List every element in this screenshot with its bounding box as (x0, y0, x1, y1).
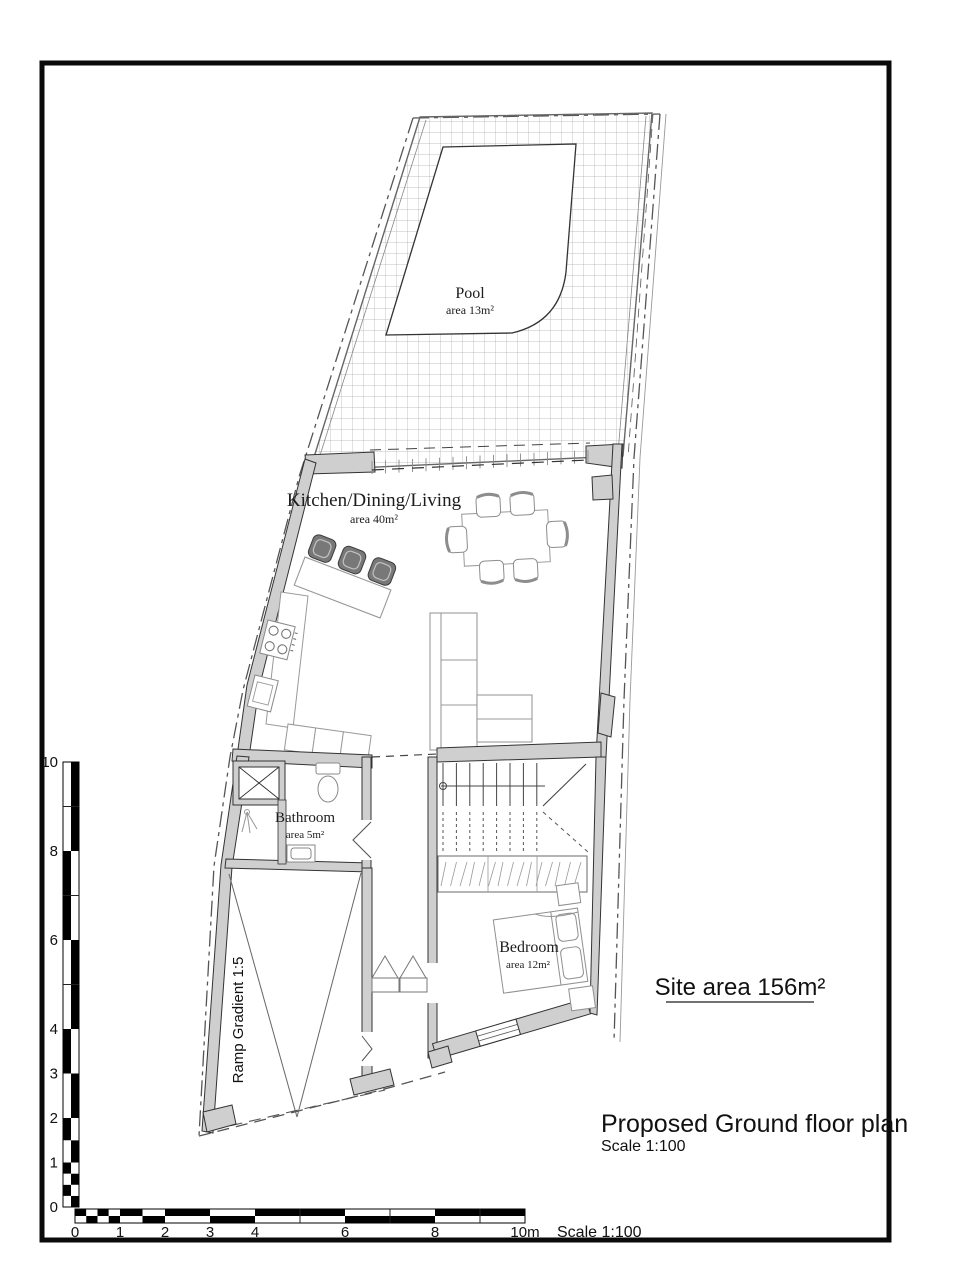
bedroom-window (476, 1019, 521, 1046)
horizontal-scale-label: 4 (251, 1224, 259, 1241)
vertical-scale-label: 1 (50, 1155, 58, 1172)
toilet (316, 763, 340, 802)
bathroom-area-label: area 5m² (286, 829, 325, 841)
drawing-title-scale: Scale 1:100 (601, 1138, 686, 1155)
horizontal-scale-label: 6 (341, 1224, 349, 1241)
dining-set (444, 490, 569, 585)
pillow (555, 912, 579, 942)
scale-note: Scale 1:100 (557, 1224, 642, 1241)
nightstand (569, 986, 596, 1011)
scale-bar-labels: 108643210012346810m (41, 754, 539, 1241)
vertical-scale-bar (63, 762, 79, 1207)
vertical-scale-label: 3 (50, 1066, 58, 1083)
entry-door (372, 956, 427, 992)
vertical-scale-label: 4 (50, 1021, 58, 1038)
bathroom-label: Bathroom (275, 810, 335, 826)
vertical-scale-label: 2 (50, 1110, 58, 1127)
horizontal-scale-label: 0 (71, 1224, 79, 1241)
kitchen-label: Kitchen/Dining/Living (287, 490, 462, 511)
ramp: Ramp Gradient 1:5 (203, 868, 452, 1132)
horizontal-scale-bar (75, 1209, 525, 1223)
ramp-label: Ramp Gradient 1:5 (230, 957, 247, 1084)
vertical-scale-label: 0 (50, 1199, 58, 1216)
drawing-title: Proposed Ground floor plan (601, 1110, 908, 1138)
pillow (560, 946, 584, 979)
horizontal-scale-label: 2 (161, 1224, 169, 1241)
site-area-label: Site area 156m² (655, 974, 826, 1001)
sofa (430, 613, 532, 750)
bedroom: Bedroom area 12m² (427, 883, 595, 1059)
bedroom-area-label: area 12m² (506, 959, 551, 971)
kitchen-island (294, 533, 400, 618)
kitchen-area-label: area 40m² (350, 512, 398, 526)
bedroom-label: Bedroom (499, 939, 559, 956)
kitchen-dining-living: Kitchen/Dining/Living area 40m² (237, 444, 622, 761)
bathroom-sink (287, 845, 315, 862)
pool-label: Pool (455, 285, 485, 302)
vertical-scale-label: 6 (50, 932, 58, 949)
drawing-sheet: Pool area 13m² Kitchen/Dining/Living are… (0, 0, 957, 1280)
vertical-scale-label: 10 (41, 754, 58, 771)
horizontal-scale-label: 10m (510, 1224, 539, 1241)
vertical-scale-label: 8 (50, 843, 58, 860)
nightstand (556, 883, 581, 906)
horizontal-scale-label: 3 (206, 1224, 214, 1241)
floor-plan-canvas: Pool area 13m² Kitchen/Dining/Living are… (0, 0, 957, 1280)
pool-area-label: area 13m² (446, 303, 494, 317)
horizontal-scale-label: 8 (431, 1224, 439, 1241)
horizontal-scale-label: 1 (116, 1224, 124, 1241)
shower-icon (242, 810, 257, 834)
bathroom: Bathroom area 5m² (202, 749, 372, 1133)
